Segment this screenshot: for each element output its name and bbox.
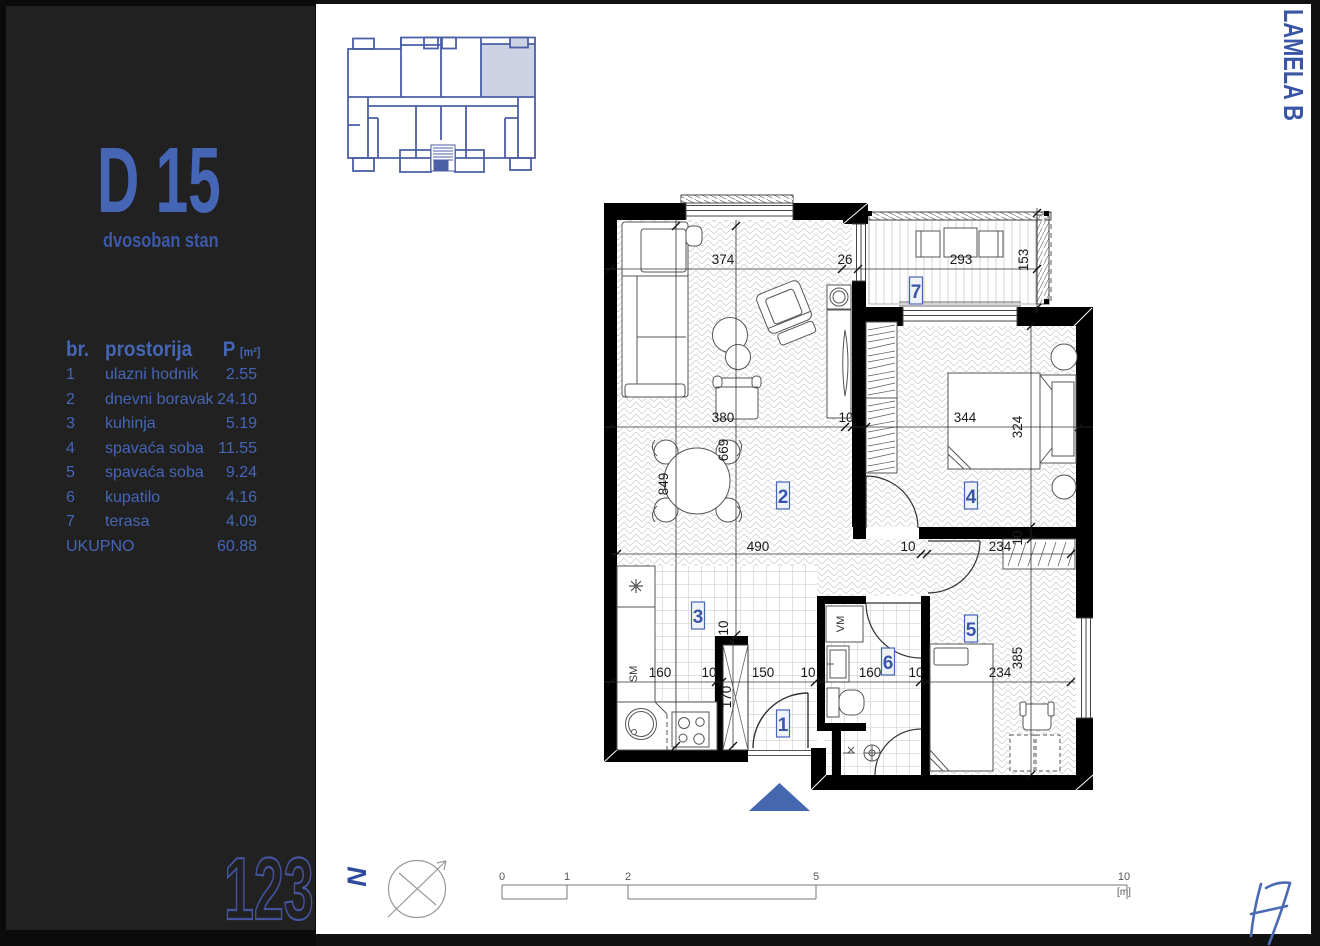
svg-text:11.55: 11.55 xyxy=(218,440,257,457)
svg-text:7: 7 xyxy=(66,513,75,530)
svg-text:spavaća soba: spavaća soba xyxy=(105,464,204,481)
svg-text:P: P xyxy=(223,338,236,361)
svg-text:6: 6 xyxy=(883,653,894,674)
svg-text:3: 3 xyxy=(66,415,75,432)
svg-text:60.88: 60.88 xyxy=(217,538,257,555)
svg-text:1: 1 xyxy=(778,715,789,736)
svg-text:7: 7 xyxy=(911,282,922,303)
svg-text:N: N xyxy=(342,867,372,887)
svg-text:5: 5 xyxy=(66,464,75,481)
svg-text:324: 324 xyxy=(1010,415,1025,438)
svg-text:10: 10 xyxy=(908,665,923,680)
svg-text:2: 2 xyxy=(625,871,631,883)
svg-text:9.24: 9.24 xyxy=(226,464,257,481)
svg-text:ulazni hodnik: ulazni hodnik xyxy=(105,366,199,383)
svg-text:234: 234 xyxy=(989,665,1012,680)
svg-text:[m]: [m] xyxy=(1117,887,1131,898)
svg-text:dnevni boravak: dnevni boravak xyxy=(105,391,215,408)
svg-text:10: 10 xyxy=(838,410,853,425)
svg-text:123: 123 xyxy=(224,841,314,939)
svg-text:293: 293 xyxy=(950,252,973,267)
svg-text:kupatilo: kupatilo xyxy=(105,489,160,506)
svg-text:4: 4 xyxy=(66,440,75,457)
svg-text:153: 153 xyxy=(1016,249,1031,272)
svg-text:10: 10 xyxy=(800,665,815,680)
svg-text:10: 10 xyxy=(1118,871,1130,883)
svg-text:SM: SM xyxy=(628,666,640,683)
svg-text:669: 669 xyxy=(716,439,731,462)
svg-text:0: 0 xyxy=(499,871,505,883)
svg-text:2.55: 2.55 xyxy=(226,366,257,383)
svg-text:374: 374 xyxy=(712,252,735,267)
svg-text:234: 234 xyxy=(989,539,1012,554)
svg-text:spavaća soba: spavaća soba xyxy=(105,440,204,457)
svg-text:6: 6 xyxy=(66,489,75,506)
svg-text:10: 10 xyxy=(900,539,915,554)
svg-text:160: 160 xyxy=(649,665,672,680)
svg-text:490: 490 xyxy=(747,539,770,554)
svg-text:[m²]: [m²] xyxy=(240,347,261,360)
svg-text:D 15: D 15 xyxy=(97,129,221,232)
svg-text:26: 26 xyxy=(837,252,852,267)
svg-text:2: 2 xyxy=(66,391,75,408)
svg-text:kuhinja: kuhinja xyxy=(105,415,156,432)
svg-text:LAMELA B: LAMELA B xyxy=(1277,9,1308,121)
svg-text:terasa: terasa xyxy=(105,513,150,530)
svg-text:4.09: 4.09 xyxy=(226,513,257,530)
svg-text:prostorija: prostorija xyxy=(105,338,193,361)
svg-text:VM: VM xyxy=(835,616,847,633)
svg-text:385: 385 xyxy=(1010,647,1025,670)
svg-text:4.16: 4.16 xyxy=(226,489,257,506)
svg-text:5: 5 xyxy=(966,620,977,641)
svg-text:UKUPNO: UKUPNO xyxy=(66,538,134,555)
svg-text:5: 5 xyxy=(813,871,819,883)
svg-text:5.19: 5.19 xyxy=(226,415,257,432)
svg-text:3: 3 xyxy=(693,607,704,628)
svg-text:2: 2 xyxy=(778,487,789,508)
svg-text:10: 10 xyxy=(701,665,716,680)
svg-text:dvosoban stan: dvosoban stan xyxy=(103,228,219,251)
svg-text:150: 150 xyxy=(752,665,775,680)
svg-text:10: 10 xyxy=(716,620,731,635)
svg-text:24.10: 24.10 xyxy=(217,391,257,408)
svg-text:1: 1 xyxy=(564,871,570,883)
svg-text:160: 160 xyxy=(859,665,882,680)
svg-text:br.: br. xyxy=(66,338,89,361)
svg-text:1: 1 xyxy=(66,366,75,383)
svg-text:380: 380 xyxy=(712,410,735,425)
svg-text:10: 10 xyxy=(1010,530,1025,545)
svg-text:4: 4 xyxy=(966,487,977,508)
svg-text:849: 849 xyxy=(656,473,671,496)
svg-text:344: 344 xyxy=(954,410,977,425)
svg-text:170: 170 xyxy=(719,686,734,709)
